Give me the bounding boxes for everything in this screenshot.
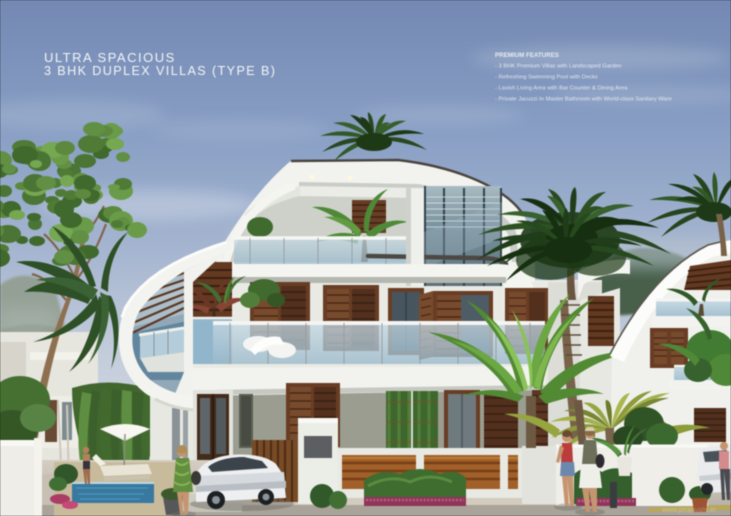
svg-text:- Private Jacuzzi In Master Ba: - Private Jacuzzi In Master Bathroom wit… xyxy=(495,97,672,103)
svg-text:- Lavish Living Area with Bar: - Lavish Living Area with Bar Counter & … xyxy=(495,86,628,92)
svg-text:3 BHK DUPLEX VILLAS (TYPE B): 3 BHK DUPLEX VILLAS (TYPE B) xyxy=(44,64,276,78)
svg-text:PREMIUM FEATURES: PREMIUM FEATURES xyxy=(495,52,559,59)
svg-text:- Refreshing Swimming Pool wit: - Refreshing Swimming Pool with Decks xyxy=(495,75,598,81)
svg-text:www.propwalls.in: www.propwalls.in xyxy=(661,507,716,514)
svg-text:ULTRA SPACIOUS: ULTRA SPACIOUS xyxy=(44,50,176,65)
svg-text:- 3 BHK Premium Villas with La: - 3 BHK Premium Villas with Landscaped G… xyxy=(495,64,622,70)
